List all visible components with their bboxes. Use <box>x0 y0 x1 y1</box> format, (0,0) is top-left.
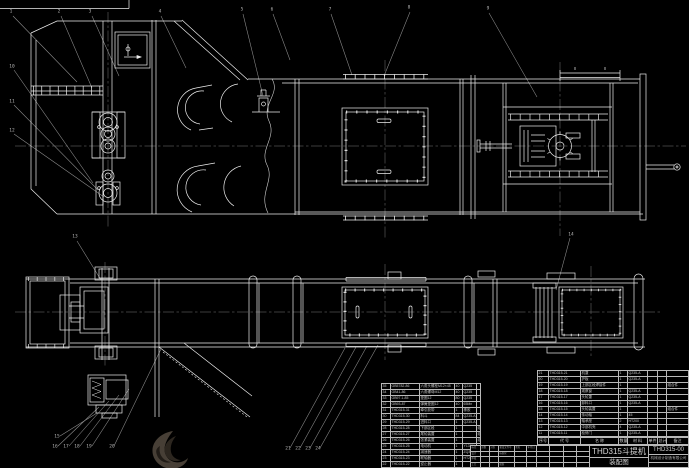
table-cell: THD315-27 <box>391 432 419 437</box>
table-cell <box>667 419 688 424</box>
bom-table-right: 21THD315-21机罩1Q235-A20THD315-20护板1Q235-A… <box>537 370 689 437</box>
table-row <box>537 452 589 457</box>
table-cell: 17 <box>538 395 548 400</box>
table-cell <box>490 457 498 462</box>
table-cell: 总计 <box>658 438 666 444</box>
table-cell <box>648 383 657 388</box>
table-cell: 20 <box>538 377 548 382</box>
table-cell: 1 <box>455 444 462 449</box>
table-cell: THD315-20 <box>549 377 580 382</box>
table-row: 设计标准化 <box>471 452 536 457</box>
table-cell <box>577 457 589 462</box>
table-cell <box>667 413 688 418</box>
table-cell: Q235 <box>463 384 476 389</box>
table-cell: 30 <box>382 414 390 419</box>
table-cell: 序号 <box>538 438 548 444</box>
table-row: 16THD315-16卸料口1Q235-A <box>538 401 688 406</box>
table-row: 23THD315-23联轴器1HT200 <box>382 456 480 461</box>
table-cell: 组合件 <box>667 383 688 388</box>
table-cell: 32 <box>382 402 390 407</box>
table-cell: 4 <box>619 425 627 430</box>
table-cell: 更改文件号 <box>499 446 514 451</box>
table-cell: 批准 <box>499 463 514 468</box>
table-cell: 29 <box>382 420 390 425</box>
table-cell <box>667 395 688 400</box>
table-cell: 签名 <box>515 446 526 451</box>
table-cell: GB93-87 <box>391 402 419 407</box>
table-cell: 橡胶 <box>463 408 476 413</box>
table-cell: Q235-A <box>628 425 647 430</box>
drawing-type-label: 装配图 <box>590 458 648 467</box>
table-cell: THD315-23 <box>391 456 419 461</box>
table-cell: THD315-13 <box>549 419 580 424</box>
table-cell: Q235-A <box>463 420 476 425</box>
table-row: 35GB5782-86六角头螺栓M12×4540Q235 <box>382 384 480 389</box>
title-area: THD315斗提机 装配图 <box>590 446 648 467</box>
table-cell: Q235-A <box>628 377 647 382</box>
table-row: 17THD315-17头轮罩1Q235-A <box>538 395 688 400</box>
table-cell <box>477 414 480 419</box>
table-cell: THD315-26 <box>391 438 419 443</box>
table-row: 13THD315-13轴承座2HT200 <box>538 419 688 424</box>
table-cell: 40 <box>455 402 462 407</box>
table-cell <box>537 452 549 457</box>
table-cell <box>550 457 562 462</box>
table-cell <box>658 419 666 424</box>
table-cell: 23 <box>382 456 390 461</box>
table-row: 审核 <box>471 457 536 462</box>
bom-table-left: 35GB5782-86六角头螺栓M12×4540Q23534GB41-86六角螺… <box>381 383 481 468</box>
table-cell: 头轮罩 <box>581 395 618 400</box>
table-cell <box>477 390 480 395</box>
table-cell: 1 <box>455 438 462 443</box>
table-row: 15THD315-15头轮装置1组合件 <box>538 407 688 412</box>
table-cell: THD315-22 <box>391 462 419 467</box>
table-cell: 1 <box>619 413 627 418</box>
table-cell <box>658 431 666 436</box>
table-cell: THD315-12 <box>549 425 580 430</box>
table-cell <box>648 413 657 418</box>
table-row: 31THD315-31牵引胶带1橡胶 <box>382 408 480 413</box>
table-cell: 1 <box>619 383 627 388</box>
table-cell <box>481 457 489 462</box>
table-cell <box>537 446 549 451</box>
table-cell <box>577 463 589 468</box>
table-cell: 标记 <box>471 446 480 451</box>
table-cell: 1 <box>455 450 462 455</box>
table-row: 30THD315-30料斗84Q235-A <box>382 414 480 419</box>
table-cell: GB5782-86 <box>391 384 419 389</box>
table-row: 25THD315-25电动机1Y132M-4 <box>382 444 480 449</box>
table-cell <box>481 452 489 457</box>
table-cell: 年月日 <box>527 446 536 451</box>
table-cell: 料斗 <box>420 414 454 419</box>
table-cell: THD315-29 <box>391 420 419 425</box>
table-cell: 21 <box>538 371 548 376</box>
table-cell: 19 <box>538 383 548 388</box>
table-cell: 15 <box>538 407 548 412</box>
table-cell: 设计 <box>471 452 480 457</box>
table-cell: 31 <box>382 408 390 413</box>
table-cell <box>658 389 666 394</box>
table-cell <box>648 407 657 412</box>
table-cell <box>537 457 549 462</box>
table-cell: 1 <box>619 431 627 436</box>
table-row: 12THD315-12中部机壳4Q235-A <box>538 425 688 430</box>
table-row: 29THD315-29进料口1Q235-A <box>382 420 480 425</box>
table-cell <box>537 463 549 468</box>
table-cell: 六角螺母M12 <box>420 390 454 395</box>
table-cell: 组合件 <box>477 426 480 431</box>
table-cell: 1 <box>455 432 462 437</box>
table-cell: Q235-A <box>628 371 647 376</box>
table-cell: Q235-A <box>628 401 647 406</box>
table-cell: 22 <box>382 462 390 467</box>
table-row: 22THD315-22逆止器1 <box>382 462 480 467</box>
table-cell: 机罩 <box>581 371 618 376</box>
table-cell: THD315-25 <box>391 444 419 449</box>
title-block: 标记处数分区更改文件号签名年月日设计标准化审核工艺批准 THD315斗提机 装配… <box>470 445 689 468</box>
table-cell <box>667 425 688 430</box>
table-cell <box>658 383 666 388</box>
table-cell <box>658 395 666 400</box>
bom-table-header: 序号代 号名 称数量材 料单件总计备注 <box>537 437 689 445</box>
table-cell: THD315-11 <box>549 431 580 436</box>
table-cell: GB97.1-85 <box>391 396 419 401</box>
table-row: 32GB93-87弹簧垫圈124065Mn <box>382 402 480 407</box>
table-cell <box>658 413 666 418</box>
table-cell: 轴承座 <box>581 419 618 424</box>
table-cell: 减速器 <box>420 450 454 455</box>
table-cell: Q235-A <box>628 389 647 394</box>
table-cell: GB41-86 <box>391 390 419 395</box>
frame-corner <box>0 0 129 9</box>
table-cell: THD315-14 <box>549 413 580 418</box>
table-cell: 检修门 <box>581 431 618 436</box>
company-name: 机械设计制造有限公司 <box>649 455 688 462</box>
table-row: 34GB41-86六角螺母M1240Q235 <box>382 390 480 395</box>
table-row: 14THD315-14传动轴145 <box>538 413 688 418</box>
stage-mark-grid <box>537 446 589 467</box>
table-cell <box>564 457 576 462</box>
table-cell <box>515 457 526 462</box>
table-cell <box>667 401 688 406</box>
cad-sheet: 123456789101112131415161718192021222324 … <box>0 0 689 468</box>
table-cell <box>490 452 498 457</box>
table-cell <box>499 457 514 462</box>
machine-views <box>0 0 680 418</box>
table-cell: 进料口 <box>420 420 454 425</box>
drawing-number-area: THD315-00 机械设计制造有限公司 <box>649 446 688 467</box>
table-cell: 逆止器 <box>420 462 454 467</box>
table-cell <box>648 377 657 382</box>
table-cell: THD315-19 <box>549 383 580 388</box>
elevation-view <box>31 20 680 220</box>
table-cell <box>658 425 666 430</box>
table-cell: 材 料 <box>628 438 647 444</box>
table-cell: THD315-24 <box>391 450 419 455</box>
table-cell: 84 <box>455 414 462 419</box>
table-cell: Q235-A <box>628 431 647 436</box>
table-row: 19THD315-19上部区段焊接件1组合件 <box>538 383 688 388</box>
table-cell: 组合件 <box>477 438 480 443</box>
table-row: 标记处数分区更改文件号签名年月日 <box>471 446 536 451</box>
table-cell <box>463 432 476 437</box>
table-cell: 27 <box>382 432 390 437</box>
table-cell: 代 号 <box>549 438 580 444</box>
table-row: 工艺批准 <box>471 463 536 468</box>
table-cell <box>658 371 666 376</box>
table-cell: 标准化 <box>499 452 514 457</box>
table-cell: 1 <box>619 389 627 394</box>
table-cell: Q235 <box>463 390 476 395</box>
table-cell <box>648 395 657 400</box>
table-cell <box>667 431 688 436</box>
table-cell: 1 <box>455 456 462 461</box>
table-cell <box>564 452 576 457</box>
table-cell <box>527 457 536 462</box>
table-cell <box>477 408 480 413</box>
table-row: 28THD315-28下部区段1组合件 <box>382 426 480 431</box>
table-row: 26THD315-26张紧装置1组合件 <box>382 438 480 443</box>
table-cell: 26 <box>382 438 390 443</box>
table-cell: 35 <box>382 384 390 389</box>
table-cell <box>648 401 657 406</box>
table-cell <box>477 384 480 389</box>
title-block-blank-cell <box>649 463 688 467</box>
table-cell: 24 <box>382 450 390 455</box>
table-cell: 组合件 <box>477 432 480 437</box>
revision-signature-grid: 标记处数分区更改文件号签名年月日设计标准化审核工艺批准 <box>471 446 536 467</box>
table-cell: 25 <box>382 444 390 449</box>
table-cell: 电动机 <box>420 444 454 449</box>
table-cell: 1 <box>619 371 627 376</box>
table-cell: 45 <box>628 413 647 418</box>
table-cell: 1 <box>455 426 462 431</box>
table-cell: 33 <box>382 396 390 401</box>
table-cell: 护板 <box>581 377 618 382</box>
table-cell: 40 <box>455 390 462 395</box>
table-cell: Q235 <box>463 396 476 401</box>
table-cell: 传动轴 <box>581 413 618 418</box>
table-row <box>537 457 589 462</box>
table-cell: 下部区段 <box>420 426 454 431</box>
table-row: 18THD315-18观察窗1Q235-A <box>538 389 688 394</box>
table-cell: 16 <box>538 401 548 406</box>
table-cell: Q235-A <box>463 414 476 419</box>
table-cell <box>477 396 480 401</box>
table-cell <box>564 446 576 451</box>
table-cell: THD315-15 <box>549 407 580 412</box>
table-cell: 卸料口 <box>581 401 618 406</box>
table-cell: 数量 <box>619 438 627 444</box>
table-cell: 2 <box>619 419 627 424</box>
table-cell <box>667 371 688 376</box>
table-cell: Q235-A <box>628 395 647 400</box>
table-cell: 28 <box>382 426 390 431</box>
table-cell: THD315-16 <box>549 401 580 406</box>
table-cell: THD315-21 <box>549 371 580 376</box>
table-cell: 牵引胶带 <box>420 408 454 413</box>
table-cell: 弹簧垫圈12 <box>420 402 454 407</box>
table-cell: 名 称 <box>581 438 618 444</box>
table-cell <box>477 420 480 425</box>
table-cell: 分区 <box>490 446 498 451</box>
table-cell <box>658 401 666 406</box>
table-cell <box>648 431 657 436</box>
table-cell: HT200 <box>628 419 647 424</box>
table-cell: 张紧装置 <box>420 438 454 443</box>
table-cell: THD315-28 <box>391 426 419 431</box>
table-cell: 40 <box>455 384 462 389</box>
table-cell: 34 <box>382 390 390 395</box>
table-cell: 联轴器 <box>420 456 454 461</box>
table-row: 24THD315-24减速器1ZQ350 <box>382 450 480 455</box>
table-cell <box>550 452 562 457</box>
table-cell: THD315-31 <box>391 408 419 413</box>
table-cell <box>577 446 589 451</box>
table-cell: 12 <box>538 425 548 430</box>
table-cell: 单件 <box>648 438 657 444</box>
table-cell: 1 <box>619 407 627 412</box>
table-cell: 观察窗 <box>581 389 618 394</box>
table-cell: 中部机壳 <box>581 425 618 430</box>
table-cell <box>481 463 489 468</box>
table-cell: 头轮装置 <box>581 407 618 412</box>
table-cell <box>515 463 526 468</box>
table-cell <box>667 377 688 382</box>
table-cell <box>577 452 589 457</box>
table-cell <box>628 383 647 388</box>
table-cell: 1 <box>455 420 462 425</box>
table-cell <box>564 463 576 468</box>
table-cell <box>658 377 666 382</box>
table-cell <box>463 438 476 443</box>
centerlines <box>15 12 686 368</box>
table-cell: 尾轮装置 <box>420 432 454 437</box>
table-cell: 1 <box>619 395 627 400</box>
table-cell: 处数 <box>481 446 489 451</box>
table-row: 33GB97.1-85垫圈1280Q235 <box>382 396 480 401</box>
table-row <box>537 463 589 468</box>
table-cell: 11 <box>538 431 548 436</box>
table-cell <box>515 452 526 457</box>
table-cell: 65Mn <box>463 402 476 407</box>
table-row: 27THD315-27尾轮装置1组合件 <box>382 432 480 437</box>
table-cell <box>550 463 562 468</box>
table-cell: 工艺 <box>471 463 480 468</box>
table-cell: 80 <box>455 396 462 401</box>
table-cell: 1 <box>455 408 462 413</box>
table-cell: 13 <box>538 419 548 424</box>
table-cell <box>658 407 666 412</box>
table-cell <box>667 389 688 394</box>
table-cell <box>648 371 657 376</box>
table-cell <box>527 463 536 468</box>
table-cell: 六角头螺栓M12×45 <box>420 384 454 389</box>
watermark-smudge <box>152 431 188 468</box>
table-cell <box>648 389 657 394</box>
table-cell: 1 <box>455 462 462 467</box>
table-cell: 18 <box>538 389 548 394</box>
table-cell: 上部区段焊接件 <box>581 383 618 388</box>
table-cell <box>550 446 562 451</box>
table-cell: 备注 <box>667 438 688 444</box>
table-cell <box>527 452 536 457</box>
drawing-number: THD315-00 <box>649 446 688 454</box>
table-cell: 1 <box>619 401 627 406</box>
table-row <box>537 446 589 451</box>
table-cell <box>648 425 657 430</box>
table-row: 21THD315-21机罩1Q235-A <box>538 371 688 376</box>
product-title: THD315斗提机 <box>590 446 648 457</box>
table-row: 11THD315-11检修门1Q235-A <box>538 431 688 436</box>
table-cell: 审核 <box>471 457 480 462</box>
table-cell <box>463 426 476 431</box>
table-cell <box>628 407 647 412</box>
table-cell <box>490 463 498 468</box>
table-cell: THD315-17 <box>549 395 580 400</box>
table-row: 20THD315-20护板1Q235-A <box>538 377 688 382</box>
table-cell: THD315-18 <box>549 389 580 394</box>
table-cell: THD315-30 <box>391 414 419 419</box>
table-cell: 1 <box>619 377 627 382</box>
table-cell: 垫圈12 <box>420 396 454 401</box>
table-cell <box>477 402 480 407</box>
table-cell <box>648 419 657 424</box>
table-cell: 组合件 <box>667 407 688 412</box>
table-row: 序号代 号名 称数量材 料单件总计备注 <box>538 438 688 444</box>
table-cell: 14 <box>538 413 548 418</box>
